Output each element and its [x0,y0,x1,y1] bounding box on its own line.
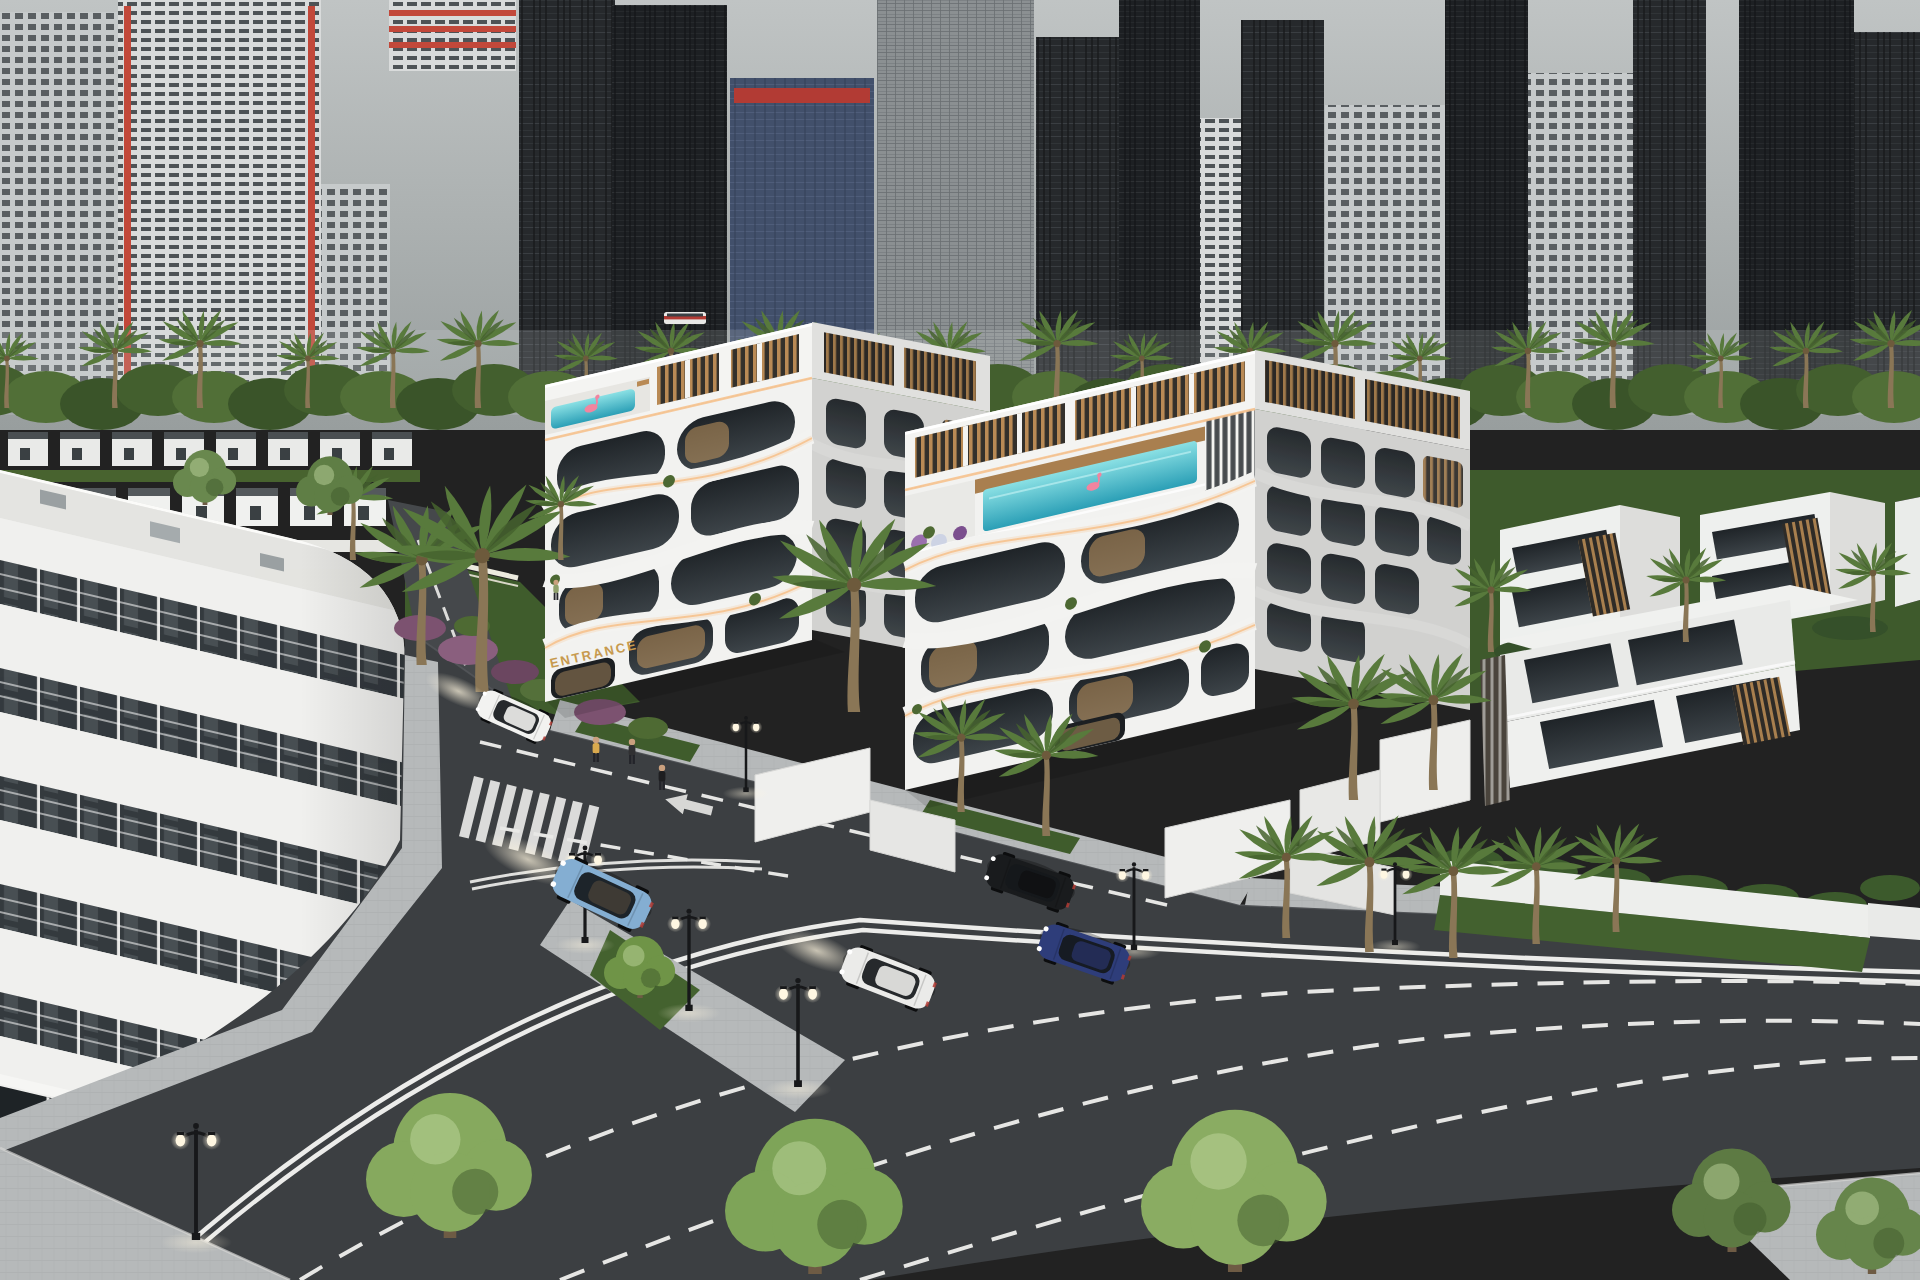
architectural-render: ENTRANCE [0,0,1920,1280]
shrub [438,635,498,665]
shrub [628,717,668,739]
townhouse-roof [128,488,170,496]
townhouse-window [250,506,261,520]
townhouse-window [358,506,369,520]
townhouse-roof [372,432,412,439]
townhouse-window [124,448,134,460]
townhouse-window [228,448,238,460]
townhouse-window [176,448,186,460]
townhouse-window [384,448,394,460]
townhouse-roof [112,432,152,439]
tower-navy-red-top-accent [734,88,870,103]
townhouse-roof [236,488,278,496]
townhouse-window [304,506,315,520]
tower-red-bands-accent [389,10,516,16]
tower-red-bands-accent [389,26,516,32]
townhouse-roof [268,432,308,439]
townhouse-window [280,448,290,460]
tower-red-bands-accent [389,42,516,48]
townhouse-roof [216,432,256,439]
townhouse-window [20,448,30,460]
townhouse-window [72,448,82,460]
townhouse-roof [60,432,100,439]
background-bus [664,312,706,324]
townhouse-roof [8,432,48,439]
townhouse-roof [164,432,204,439]
villa-3 [1895,497,1920,607]
townhouse-roof [320,432,360,439]
